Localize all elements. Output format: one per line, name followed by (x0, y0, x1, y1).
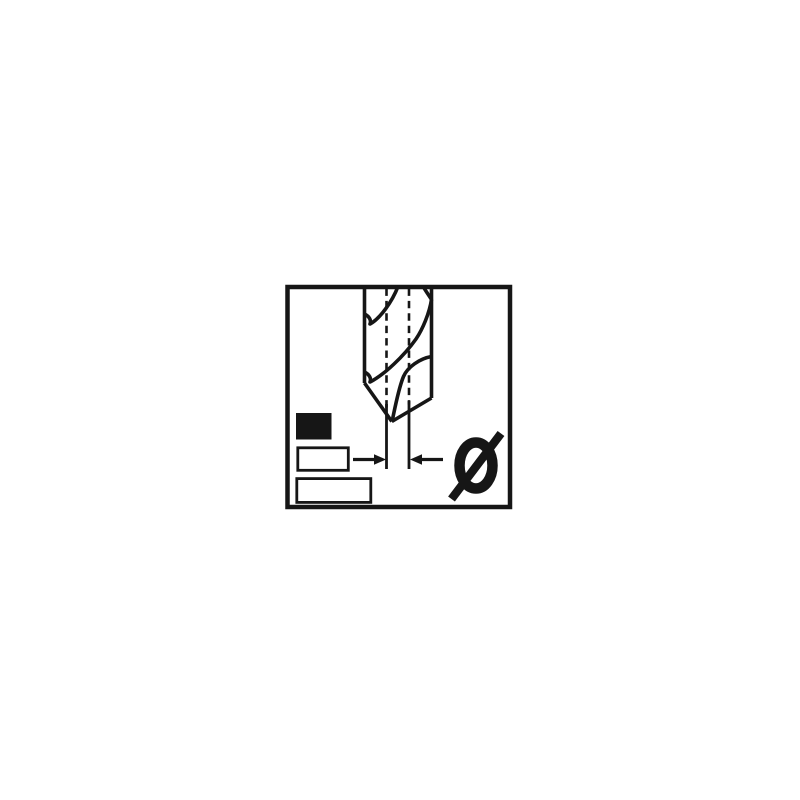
drill-diameter-pictogram (0, 0, 800, 800)
drill-flute-upper (365, 287, 399, 325)
dimension-arrow-left-head-icon (374, 454, 386, 465)
dimension-arrow-right-head-icon (410, 454, 422, 465)
swatch-outline-rectangle-small (298, 448, 349, 471)
swatch-outline-rectangle-large (297, 479, 371, 503)
drill-bit-icon (365, 287, 432, 422)
swatch-filled-rectangle (296, 413, 332, 440)
extension-lines (387, 401, 410, 469)
page-background: Ø (0, 0, 800, 800)
dimension-arrows (353, 454, 443, 465)
legend-swatches (296, 413, 371, 502)
drill-flute-main (365, 300, 432, 383)
diameter-symbol-icon (452, 434, 502, 500)
